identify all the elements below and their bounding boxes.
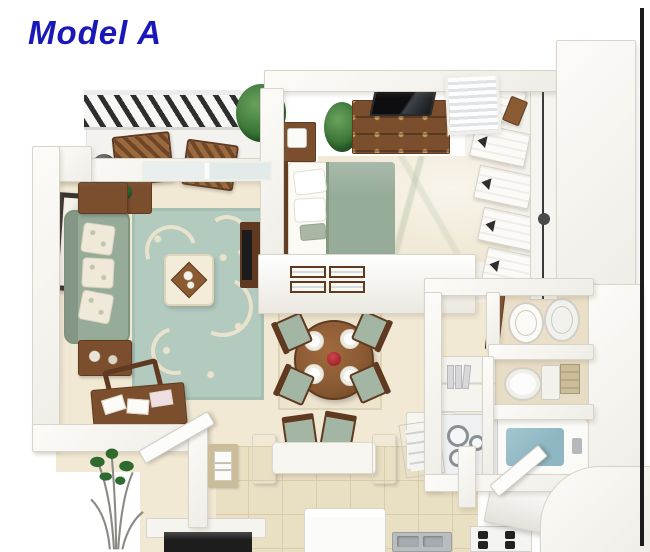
picture-frame	[329, 281, 365, 293]
living-room-tv	[242, 230, 252, 280]
toilet	[504, 364, 560, 400]
breakfast-bar	[272, 442, 376, 474]
bed-pillow	[293, 168, 328, 196]
bathroom-wall	[488, 404, 594, 420]
towel-rack	[560, 364, 580, 394]
picture-frame	[290, 266, 326, 278]
serving-tray	[171, 262, 208, 299]
desk-papers	[101, 394, 126, 415]
sofa-pillow	[77, 289, 114, 325]
tub-faucet	[572, 438, 582, 454]
shelf-items	[455, 365, 462, 389]
picture-frame	[290, 281, 326, 293]
bar-pillar	[372, 434, 396, 484]
sink-basin	[397, 536, 419, 547]
shelf-items	[447, 365, 454, 389]
bedroom-tv	[369, 90, 437, 116]
flower-centerpiece	[327, 352, 341, 366]
bathroom-wall	[424, 292, 442, 490]
nightstand	[280, 122, 316, 162]
wall	[32, 146, 60, 450]
sink-basin	[423, 536, 443, 547]
toilet-bowl	[504, 367, 542, 401]
exterior-wall	[588, 284, 642, 486]
exterior-wall	[556, 40, 636, 288]
desk-papers	[149, 389, 173, 407]
ottoman-coffee-table	[164, 254, 214, 306]
shelf-items	[462, 365, 471, 390]
exterior-plant-sketch	[62, 426, 166, 552]
bathroom-wall	[486, 292, 500, 350]
sofa-pillow	[81, 257, 115, 289]
stove-burner	[505, 541, 515, 549]
image-edge-line	[640, 8, 644, 546]
bedroom-window	[444, 73, 501, 136]
kitchen-wall	[458, 446, 476, 508]
wall	[264, 70, 560, 92]
bed-accent-pillow	[299, 223, 326, 241]
picture-frame-grid	[290, 266, 370, 296]
bathroom-wall	[482, 356, 494, 478]
bathroom-wall	[488, 344, 594, 360]
page-title: Model A	[28, 14, 162, 52]
dishwasher	[304, 508, 386, 552]
stove-burner	[505, 531, 515, 539]
stove-burner	[478, 541, 488, 549]
washer-dial	[447, 425, 469, 447]
bed-pillow	[293, 197, 326, 223]
floor-plan: Model A	[0, 0, 650, 552]
vanity-mirror	[544, 298, 580, 342]
stove-burner	[478, 531, 488, 539]
entry-wall	[188, 424, 208, 528]
oven-range	[164, 532, 252, 552]
closet-sliding-door	[530, 84, 558, 300]
picture-frame	[329, 266, 365, 278]
table-lamp	[287, 128, 307, 148]
end-table	[78, 182, 128, 214]
thermostat-panel	[208, 444, 238, 488]
balcony-sliding-glass-door	[142, 161, 272, 181]
vanity-sink	[508, 302, 544, 344]
wall	[56, 146, 92, 182]
kitchen-sink	[392, 532, 452, 552]
stove-cooktop	[470, 526, 532, 552]
desk-papers	[126, 398, 149, 414]
bathroom-wall	[424, 278, 594, 296]
toilet-tank	[541, 365, 560, 400]
sofa-pillow	[80, 222, 116, 256]
